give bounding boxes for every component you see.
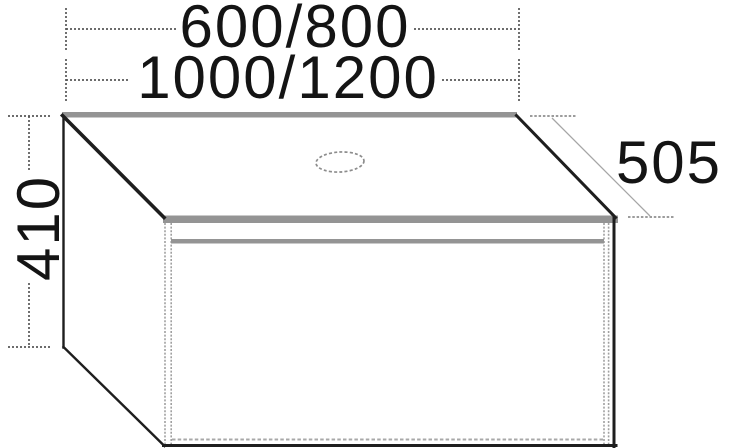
drawer-front-top-edge: [171, 239, 604, 244]
dimension-depth: 505: [530, 116, 722, 217]
dim-label-height: 410: [5, 175, 72, 281]
countertop-back-edge: [62, 112, 517, 118]
technical-drawing-canvas: 600/800 1000/1200 410 505: [0, 0, 730, 448]
dimension-height: 410: [5, 116, 72, 347]
dim-label-bottom-width: 1000/1200: [137, 44, 439, 111]
cabinet-body: [64, 117, 617, 447]
dimension-bottom-width: 1000/1200: [66, 44, 519, 111]
drawing-page: 600/800 1000/1200 410 505: [0, 0, 730, 448]
countertop-front-edge: [163, 216, 618, 224]
countertop-left-edge: [63, 116, 165, 218]
tap-hole: [316, 151, 365, 173]
countertop: [62, 112, 618, 223]
dim-label-depth: 505: [616, 129, 722, 196]
cabinet-bottom-left-edge: [64, 347, 165, 446]
